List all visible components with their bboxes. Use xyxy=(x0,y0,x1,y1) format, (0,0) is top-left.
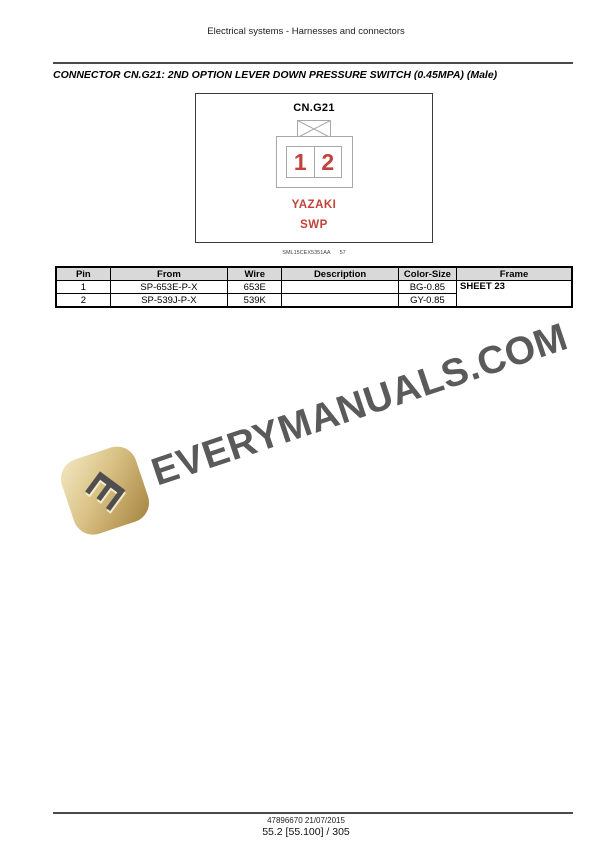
logo-letter: E xyxy=(77,465,132,517)
watermark: E EVERYMANUALS.COM xyxy=(55,298,579,541)
header-rule xyxy=(53,62,573,64)
pin-2-cell: 2 xyxy=(315,147,342,177)
col-header-color-size: Color-Size xyxy=(398,267,456,281)
cell-color-size: BG-0.85 xyxy=(398,281,456,294)
connector-id-label: CN.G21 xyxy=(196,102,432,114)
cell-pin: 2 xyxy=(56,294,110,308)
footer-doc-line: 47896670 21/07/2015 xyxy=(0,816,612,825)
col-header-description: Description xyxy=(282,267,398,281)
connector-diagram: CN.G21 1 2 YAZAKI SWP xyxy=(195,93,433,243)
table-header-row: Pin From Wire Description Color-Size Fra… xyxy=(56,267,572,281)
series-label: SWP xyxy=(196,219,432,231)
pin-table: Pin From Wire Description Color-Size Fra… xyxy=(55,266,573,308)
cell-wire: 653E xyxy=(228,281,282,294)
pin-row: 1 2 xyxy=(286,146,342,178)
connector-housing: 1 2 xyxy=(276,136,353,188)
page-title: CONNECTOR CN.G21: 2ND OPTION LEVER DOWN … xyxy=(53,69,593,81)
manufacturer-label: YAZAKI xyxy=(196,199,432,211)
pin-1-cell: 1 xyxy=(287,147,315,177)
footer-page-line: 55.2 [55.100] / 305 xyxy=(0,826,612,838)
figure-number: 57 xyxy=(340,250,346,256)
everymanuals-logo-icon: E xyxy=(56,441,155,540)
cell-frame: SHEET 23 xyxy=(457,281,572,308)
figure-caption: SML15CEX5351AA57 xyxy=(195,250,433,256)
table-row: 1 SP-653E-P-X 653E BG-0.85 SHEET 23 xyxy=(56,281,572,294)
running-header: Electrical systems - Harnesses and conne… xyxy=(0,26,612,37)
cell-from: SP-539J-P-X xyxy=(110,294,227,308)
col-header-from: From xyxy=(110,267,227,281)
cell-description xyxy=(282,281,398,294)
cell-pin: 1 xyxy=(56,281,110,294)
footer-rule xyxy=(53,812,573,814)
col-header-wire: Wire xyxy=(228,267,282,281)
col-header-pin: Pin xyxy=(56,267,110,281)
watermark-text: EVERYMANUALS.COM xyxy=(146,315,573,495)
cell-wire: 539K xyxy=(228,294,282,308)
cell-from: SP-653E-P-X xyxy=(110,281,227,294)
figure-code: SML15CEX5351AA xyxy=(282,250,330,256)
col-header-frame: Frame xyxy=(457,267,572,281)
cell-description xyxy=(282,294,398,308)
cell-color-size: GY-0.85 xyxy=(398,294,456,308)
manual-page: Electrical systems - Harnesses and conne… xyxy=(0,0,612,864)
